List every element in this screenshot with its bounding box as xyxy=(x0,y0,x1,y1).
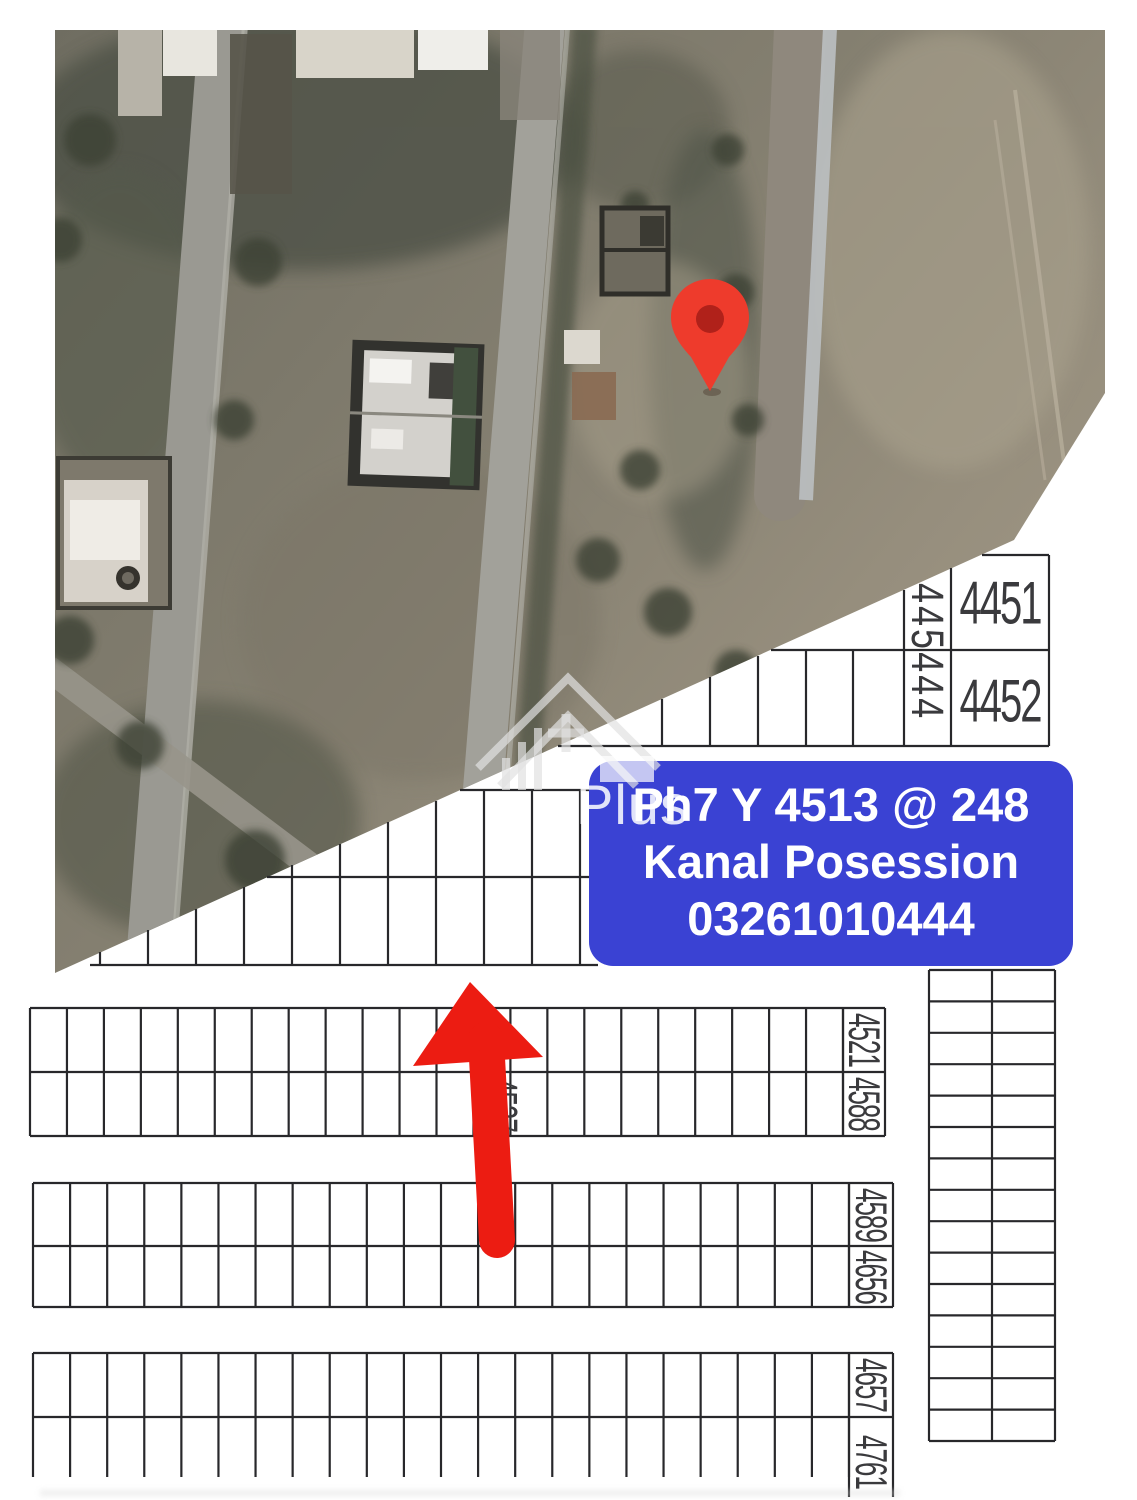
map-pin-icon xyxy=(0,0,1137,1500)
pin-body xyxy=(671,279,749,391)
listing-image: 4451 4452 445444 4521 4588 4589 4656 465… xyxy=(0,0,1137,1500)
pin-center xyxy=(696,305,724,333)
